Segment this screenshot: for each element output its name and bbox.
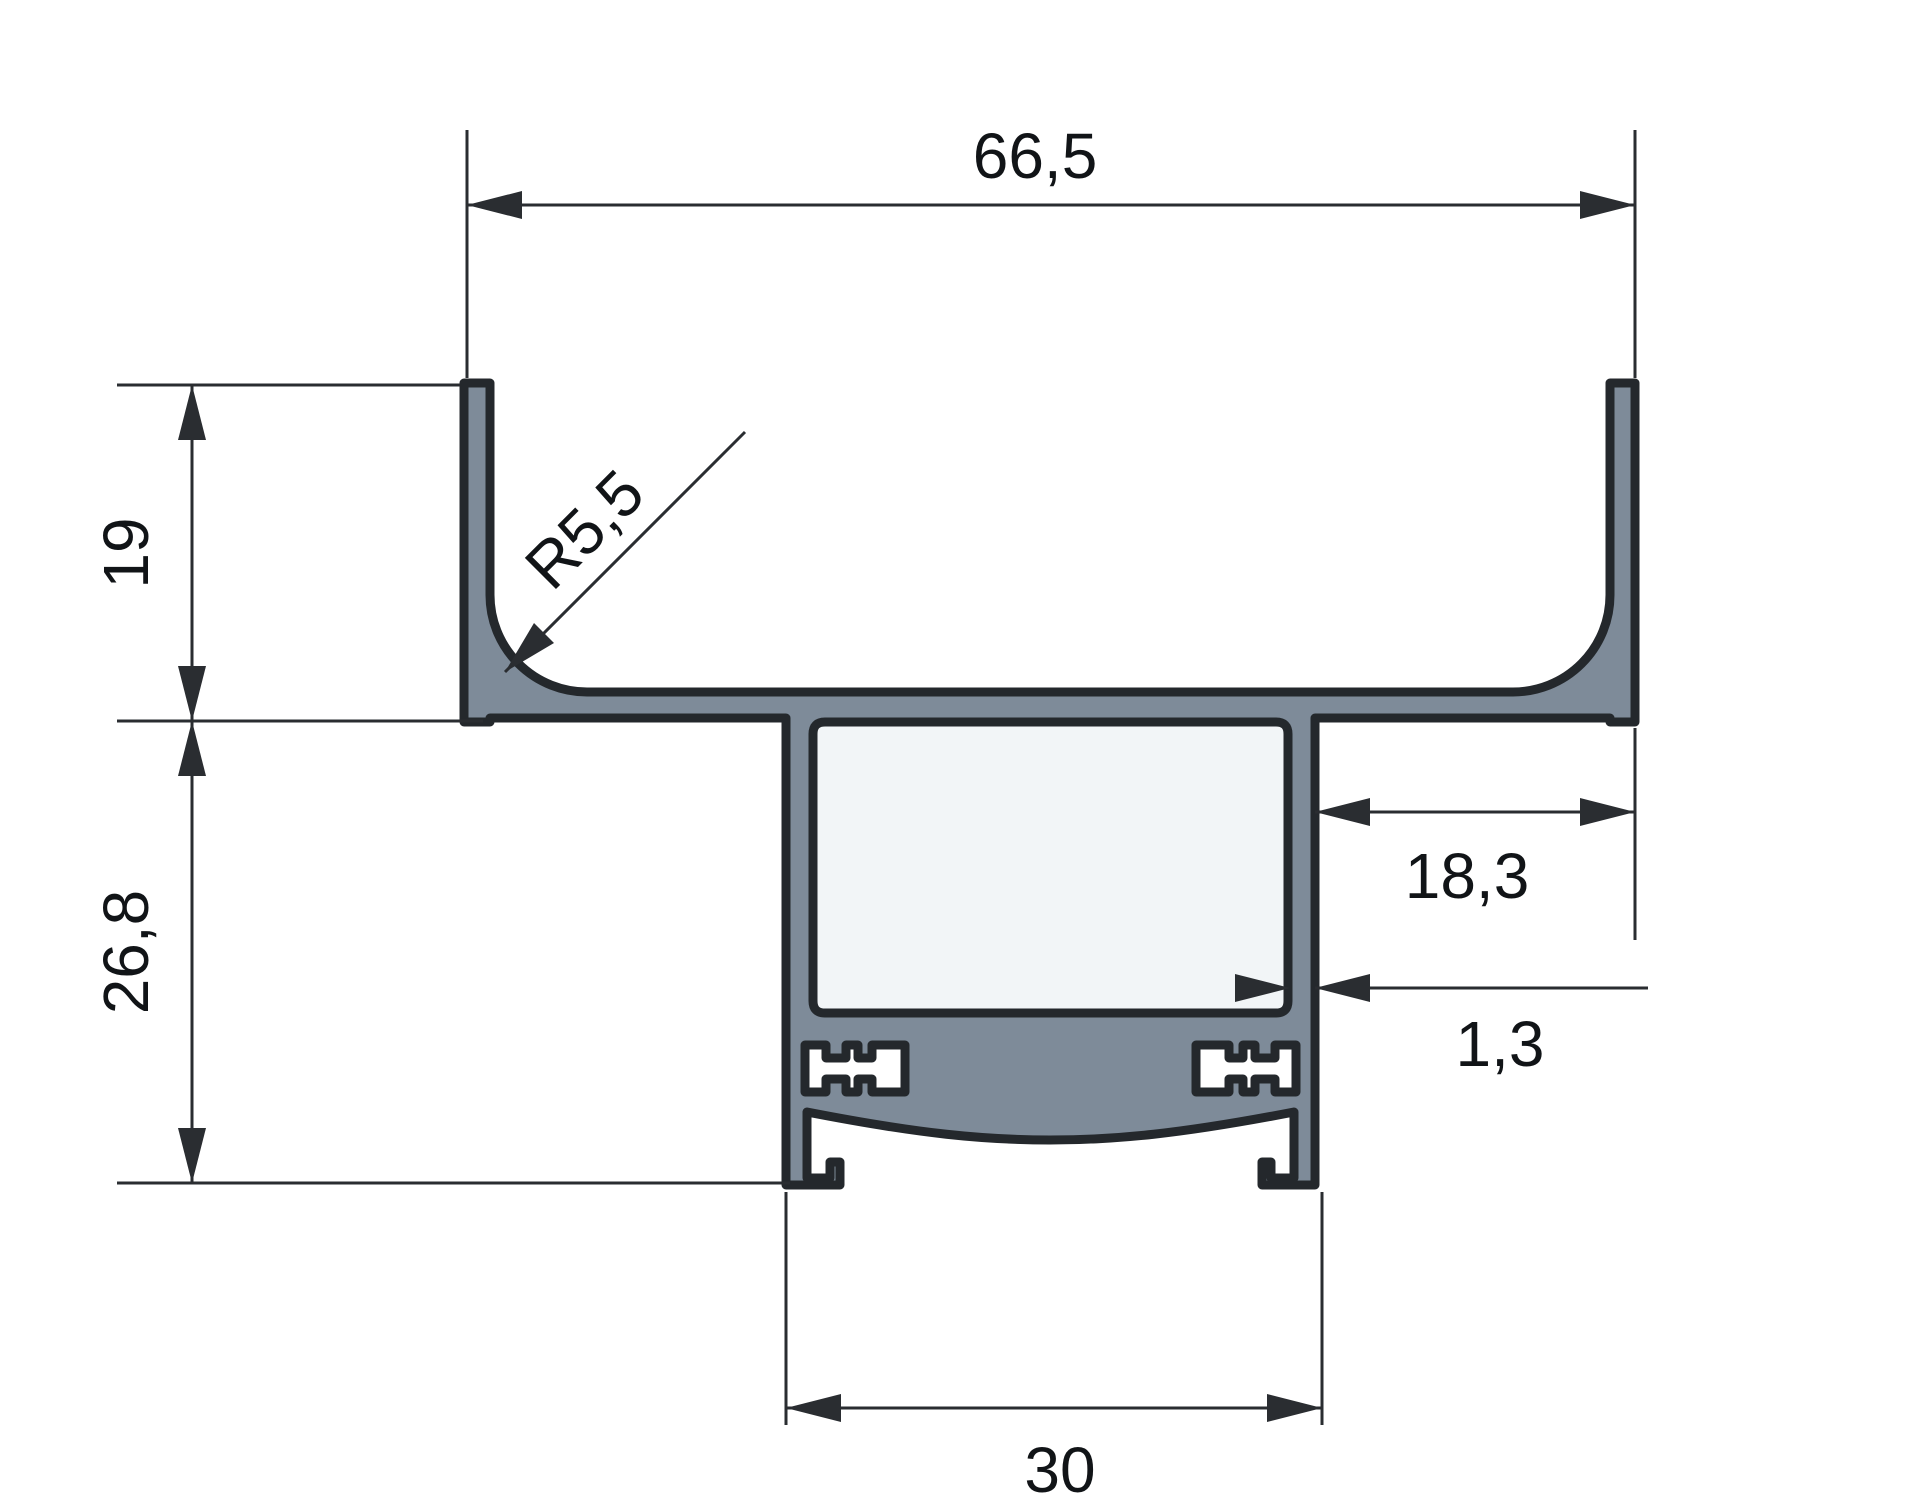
dim-label-right-flange-width: 18,3 [1405, 840, 1530, 912]
dim-label-bottom-width: 30 [1024, 1434, 1095, 1506]
arrowhead-right [1580, 798, 1635, 826]
arrowhead-right [1267, 1394, 1322, 1422]
dim-upper-wall-height: 19 [90, 385, 483, 721]
arrowhead-left [1315, 798, 1370, 826]
profile-drawing-svg: 66,5 19 26,8 R5,5 18,3 1,3 [0, 0, 1920, 1507]
arrowhead-up [178, 721, 206, 776]
dim-label-wall-thickness: 1,3 [1456, 1008, 1545, 1080]
dim-label-fillet-radius: R5,5 [511, 456, 658, 603]
drawing-canvas: 66,5 19 26,8 R5,5 18,3 1,3 [0, 0, 1920, 1507]
arrowhead-left [467, 191, 522, 219]
dim-label-lower-body-height: 26,8 [90, 890, 162, 1015]
dim-lower-body-height: 26,8 [90, 721, 790, 1183]
box-cavity-fill [813, 722, 1288, 1013]
arrowhead-left [786, 1394, 841, 1422]
arrowhead-up [178, 385, 206, 440]
dim-fillet-radius: R5,5 [505, 432, 745, 672]
dim-bottom-width: 30 [786, 1192, 1322, 1506]
dim-right-flange-width: 18,3 [1315, 728, 1635, 940]
dim-label-upper-wall-height: 19 [90, 517, 162, 588]
arrowhead-left-outer [1315, 974, 1370, 1002]
arrowhead-down [178, 1128, 206, 1183]
dim-label-top-width: 66,5 [973, 120, 1098, 192]
dim-top-width: 66,5 [467, 120, 1635, 378]
arrowhead-right [1580, 191, 1635, 219]
arrowhead-down [178, 666, 206, 721]
